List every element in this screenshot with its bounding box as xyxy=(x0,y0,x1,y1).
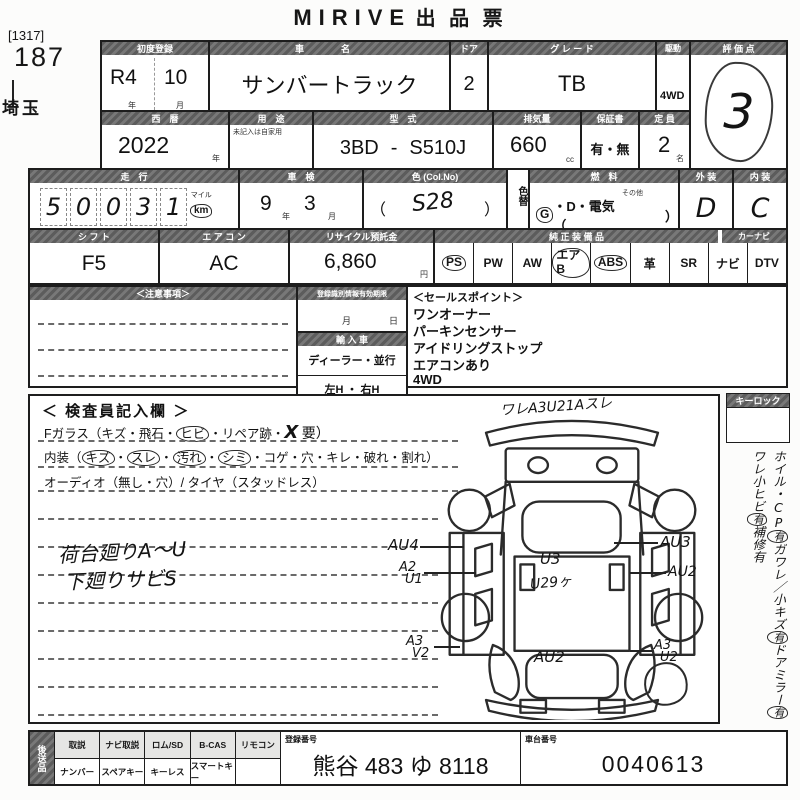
score-value: 3 xyxy=(705,63,772,161)
year-value: 2022 xyxy=(118,132,169,159)
cell-interior: 内 装 C xyxy=(732,168,788,230)
cell-model: 型 式 3BD - S510J xyxy=(312,110,494,170)
displacement-value: 660 xyxy=(510,132,547,158)
equip-leather: 革 xyxy=(630,243,669,283)
import-label: 輸 入 車 xyxy=(298,333,406,346)
damage-code: V2 xyxy=(406,648,429,660)
interior-circled-sure: スレ xyxy=(127,450,160,466)
equipment-items: PS PW AW エアB ABS 革 SR ナビ DTV xyxy=(435,243,786,283)
unit-persons: 名 xyxy=(676,153,684,164)
cell-displacement: 排気量 660 cc xyxy=(492,110,582,170)
equip-abs-label: ABS xyxy=(594,255,627,271)
cell-import: 輸 入 車 ディーラー・並行 左H ・ 右H xyxy=(296,331,408,401)
shift-value: F5 xyxy=(30,246,158,282)
bottom-row-b: ナンバー スペアキー キーレス スマートキー xyxy=(54,758,280,784)
title-en: MIRIVE xyxy=(293,5,411,30)
cell-door: ドア 2 xyxy=(449,40,489,112)
fuel-label: 燃 料 xyxy=(530,170,678,183)
car-name: サンバートラック xyxy=(210,64,449,104)
item-empty xyxy=(235,759,280,784)
mileage-digit: 5 xyxy=(40,188,67,226)
fuel-gasoline: G xyxy=(536,207,553,223)
chassis-number: 0040613 xyxy=(521,744,786,784)
dashed-line xyxy=(38,602,438,604)
registration-number: 熊谷 483 ゆ 8118 xyxy=(281,744,520,784)
cell-recycle: リサイクル預託金 6,860 円 xyxy=(288,228,435,285)
glass-text: ・リペア跡・ xyxy=(209,427,284,441)
equip-ps: PS xyxy=(435,243,473,283)
model-label: 型 式 xyxy=(314,112,492,125)
equip-dtv: DTV xyxy=(747,243,786,283)
prefecture: 埼玉 xyxy=(2,94,42,119)
model-suffix: S510J xyxy=(409,137,466,160)
paren-open: （ xyxy=(370,196,386,220)
inspector-title: ＜ 検査員記入欄 ＞ xyxy=(42,400,190,421)
dashed-line xyxy=(38,323,288,325)
mileage-digits: 5 0 0 3 1 xyxy=(40,188,187,226)
item-manual: 取説 xyxy=(54,732,99,758)
door-label: ドア xyxy=(451,42,487,55)
fuel-other-label: その他 xyxy=(622,188,643,198)
keylock-box xyxy=(726,407,790,443)
item-number-plate: ナンバー xyxy=(54,759,99,784)
annotation-line xyxy=(630,650,652,652)
score-label: 評 価 点 xyxy=(691,42,786,55)
item-spare-key: スペアキー xyxy=(99,759,144,784)
interior-grade: C xyxy=(734,188,786,228)
registration-id-label: 登録識別情報有効期限 xyxy=(298,287,406,300)
cell-shaken: 車 検 9 年 3 月 xyxy=(238,168,364,230)
sales-point: 4WD xyxy=(413,372,442,387)
interior-circled-kizu: キズ xyxy=(82,450,115,466)
bed-note-2: U29ヶ xyxy=(529,570,573,594)
unit-km: km xyxy=(190,204,212,218)
aircon-value: AC xyxy=(160,246,288,282)
cell-drive: 駆動 4WD xyxy=(655,40,691,112)
cell-aircon: エ ア コ ン AC xyxy=(158,228,290,285)
model-dash: - xyxy=(391,137,398,160)
cell-grade: グ レ ー ド TB xyxy=(487,40,657,112)
dashed-line xyxy=(38,518,438,520)
shaken-year: 9 xyxy=(260,192,272,216)
cell-warranty: 保証書 有・無 xyxy=(580,110,640,170)
model-prefix: 3BD xyxy=(340,137,379,160)
damage-note-left-2: A2 U1 xyxy=(399,562,423,586)
shaken-month: 3 xyxy=(304,192,316,216)
dashed-line xyxy=(38,466,458,468)
cell-sales-points: ＜セールスポイント＞ ワンオーナー パーキンセンサー アイドリングストップ エア… xyxy=(406,285,788,388)
cautions-label: ＜注意事項＞ xyxy=(30,287,296,300)
unit-yen: 円 xyxy=(420,269,428,280)
unit-cc: cc xyxy=(566,155,574,164)
side-note-circled-ari: 有 xyxy=(747,513,768,526)
cell-score: 評 価 点 3 xyxy=(689,40,788,170)
cell-color: 色 (Col.No) （ S28 ） xyxy=(362,168,508,230)
cell-equipment: 純 正 装 備 品 カーナビ PS PW AW エアB ABS 革 SR ナビ … xyxy=(433,228,788,285)
first-reg-month: 10 xyxy=(164,66,187,90)
mileage-unit: マイル km xyxy=(190,190,212,218)
aircon-label: エ ア コ ン xyxy=(160,230,288,243)
side-note-text: ホイル・CP xyxy=(771,450,786,530)
score-hand-box: 3 xyxy=(703,61,774,163)
shift-label: シ フ ト xyxy=(30,230,158,243)
paren-close: ） xyxy=(484,196,500,220)
car-name-label: 車 名 xyxy=(210,42,449,55)
first-registration-label: 初度登録 xyxy=(102,42,208,55)
item-smart-key: スマートキー xyxy=(190,759,235,784)
cell-year: 西 暦 2022 年 xyxy=(100,110,230,170)
bed-note-1: U3 xyxy=(540,550,561,568)
drive-type: 4WD xyxy=(660,90,684,102)
dashed-line xyxy=(38,630,438,632)
item-remote: リモコン xyxy=(235,732,280,758)
cell-use: 用 途 未記入は自家用 xyxy=(228,110,314,170)
divider xyxy=(154,58,155,110)
recycle-label: リサイクル預託金 xyxy=(290,230,433,243)
dashed-line xyxy=(38,686,438,688)
year-label: 西 暦 xyxy=(102,112,228,125)
interior-text: ・ xyxy=(206,451,219,465)
displacement-label: 排気量 xyxy=(494,112,580,125)
side-hand-notes: ホイル・CP有ガワレ／小キズ有ドアミラー有ワレ小ヒビ有補修有 xyxy=(726,450,788,722)
cell-exterior: 外 装 D xyxy=(678,168,734,230)
bottom-row-a: 取説 ナビ取説 ロム/SD B-CAS リモコン xyxy=(54,732,280,758)
lot-number: 187 xyxy=(14,42,65,73)
damage-note-left-1: AU4 xyxy=(388,536,419,554)
annotation-line xyxy=(630,572,666,574)
keylock-label: キーロック xyxy=(726,393,790,408)
annotation-line xyxy=(420,546,464,548)
auction-sheet: MIRIVE 出 品 票 [1317] 187 埼玉 初度登録 R4 10 年 … xyxy=(0,0,800,800)
shaken-label: 車 検 xyxy=(240,170,362,183)
unit-month: 月 xyxy=(328,211,336,222)
equipment-label: 純 正 装 備 品 xyxy=(435,230,718,243)
cell-first-registration: 初度登録 R4 10 年 月 xyxy=(100,40,210,112)
cell-capacity: 定 員 2 名 xyxy=(638,110,691,170)
interior-text: ・コゲ・穴・キレ・破れ・割れ） xyxy=(251,451,439,465)
mileage-digit: 0 xyxy=(100,188,127,226)
grade-label: グ レ ー ド xyxy=(489,42,655,55)
cell-registration-id: 登録識別情報有効期限 月 日 xyxy=(296,285,408,333)
side-note-circled-ari: 有 xyxy=(767,706,788,719)
damage-note-right-3: A3 U2 xyxy=(654,640,678,664)
equip-sunroof: SR xyxy=(669,243,708,283)
dashed-line xyxy=(38,714,438,716)
cell-chassis-number: 車台番号 0040613 xyxy=(520,732,786,784)
side-note-circled-ari: 有 xyxy=(767,530,788,543)
item-navi-manual: ナビ取説 xyxy=(99,732,144,758)
model-code: 3BD - S510J xyxy=(314,130,492,166)
equipment-label2: カーナビ xyxy=(722,230,786,243)
dashed-line xyxy=(38,349,288,351)
annotation-line xyxy=(614,542,658,544)
equip-abs: ABS xyxy=(590,243,629,283)
fuel-paren-close: ） xyxy=(665,206,678,225)
cell-registration-number: 登録番号 熊谷 483 ゆ 8118 xyxy=(280,732,520,784)
bottom-table: 後送品 取説 ナビ取説 ロム/SD B-CAS リモコン ナンバー スペアキー … xyxy=(28,730,788,786)
sales-points-label: ＜セールスポイント＞ xyxy=(413,289,523,305)
side-note-text: 補修有 xyxy=(750,526,765,564)
equip-airbag: エアB xyxy=(551,243,590,283)
side-note-text: 小ヒビ xyxy=(750,475,765,513)
item-keyless: キーレス xyxy=(144,759,189,784)
mileage-digit: 1 xyxy=(160,188,187,226)
dashed-line xyxy=(38,440,458,442)
item-bcas: B-CAS xyxy=(190,732,235,758)
divider xyxy=(298,375,406,376)
cell-cautions: ＜注意事項＞ xyxy=(28,285,298,388)
equip-pw: PW xyxy=(473,243,512,283)
item-rom-sd: ロム/SD xyxy=(144,732,189,758)
warranty-value: 有・無 xyxy=(582,132,638,164)
first-reg-era: R4 xyxy=(110,66,137,90)
dashed-line xyxy=(38,658,438,660)
interior-text: ・ xyxy=(160,451,173,465)
audio-tire-line: オーディオ（無し・穴）/ タイヤ（スタッドレス） xyxy=(44,472,325,491)
door-count: 2 xyxy=(451,64,487,104)
cell-mileage: 走 行 5 0 0 3 1 マイル km xyxy=(28,168,240,230)
side-note-text: 小キズ xyxy=(771,593,786,631)
damage-note-left-3: A3 V2 xyxy=(406,636,429,660)
color-code: S28 xyxy=(411,188,455,217)
damage-note-right-2: AU2 xyxy=(668,564,697,580)
recycle-value: 6,860 xyxy=(324,250,377,274)
interior-line: 内装（キズ・スレ・汚れ・シミ・コゲ・穴・キレ・破れ・割れ） xyxy=(44,447,439,466)
damage-note-right-1: AU3 xyxy=(660,533,691,551)
unit-month: 月 xyxy=(342,314,351,327)
side-note-text: ガワレ／ xyxy=(771,543,786,593)
unit-mile: マイル xyxy=(190,190,212,200)
interior-circled-yogore: 汚れ xyxy=(173,450,206,466)
damage-code: U1 xyxy=(399,574,423,586)
annotation-line xyxy=(434,646,460,648)
side-note-text: ドアミラー xyxy=(771,644,786,707)
interior-text: 内装（ xyxy=(44,451,82,465)
glass-text: 要） xyxy=(302,425,330,441)
interior-text: ・ xyxy=(115,451,128,465)
use-label: 用 途 xyxy=(230,112,312,125)
hand-note-2: 下廻りサビS xyxy=(64,562,178,595)
cell-car-name: 車 名 サンバートラック xyxy=(208,40,451,112)
interior-circled-shimi: シミ xyxy=(218,450,251,466)
dashed-line xyxy=(38,490,458,492)
use-note: 未記入は自家用 xyxy=(233,127,282,137)
mileage-digit: 3 xyxy=(130,188,157,226)
cell-fuel: 燃 料 G ・D・電気（ ） その他 xyxy=(528,168,680,230)
exterior-grade: D xyxy=(680,188,732,228)
drive-label: 駆動 xyxy=(657,42,689,55)
glass-text: Fガラス（キズ・飛石・ xyxy=(44,427,176,441)
interior-label: 内 装 xyxy=(734,170,786,183)
mileage-label: 走 行 xyxy=(30,170,238,183)
side-note-circled-ari: 有 xyxy=(767,631,788,644)
annotation-line xyxy=(424,572,476,574)
color-label: 色 (Col.No) xyxy=(364,170,506,183)
equip-ps-label: PS xyxy=(442,255,466,271)
equip-navi: ナビ xyxy=(708,243,747,283)
mileage-digit: 0 xyxy=(70,188,97,226)
after-send-label: 後送品 xyxy=(30,732,54,784)
dashed-line xyxy=(38,375,288,377)
capacity-value: 2 xyxy=(658,132,670,158)
cell-color-change: 色替 xyxy=(506,168,530,230)
grade: TB xyxy=(489,64,655,104)
title-jp: 出 品 票 xyxy=(416,8,507,30)
import-type: ディーラー・並行 xyxy=(298,347,406,373)
unit-year: 年 xyxy=(212,153,220,164)
color-change-label: 色替 xyxy=(514,186,529,206)
side-note-text: ワレ xyxy=(750,450,765,475)
capacity-label: 定 員 xyxy=(640,112,689,125)
damage-note-bottom: AU2 xyxy=(534,648,565,666)
page-title: MIRIVE 出 品 票 xyxy=(230,2,570,31)
equip-airbag-label: エアB xyxy=(552,248,590,278)
unit-day: 日 xyxy=(389,314,398,327)
equip-aw: AW xyxy=(512,243,551,283)
cell-shift: シ フ ト F5 xyxy=(28,228,160,285)
lot-bracket: [1317] xyxy=(8,28,44,43)
warranty-label: 保証書 xyxy=(582,112,638,125)
exterior-label: 外 装 xyxy=(680,170,732,183)
unit-year: 年 xyxy=(282,211,290,222)
